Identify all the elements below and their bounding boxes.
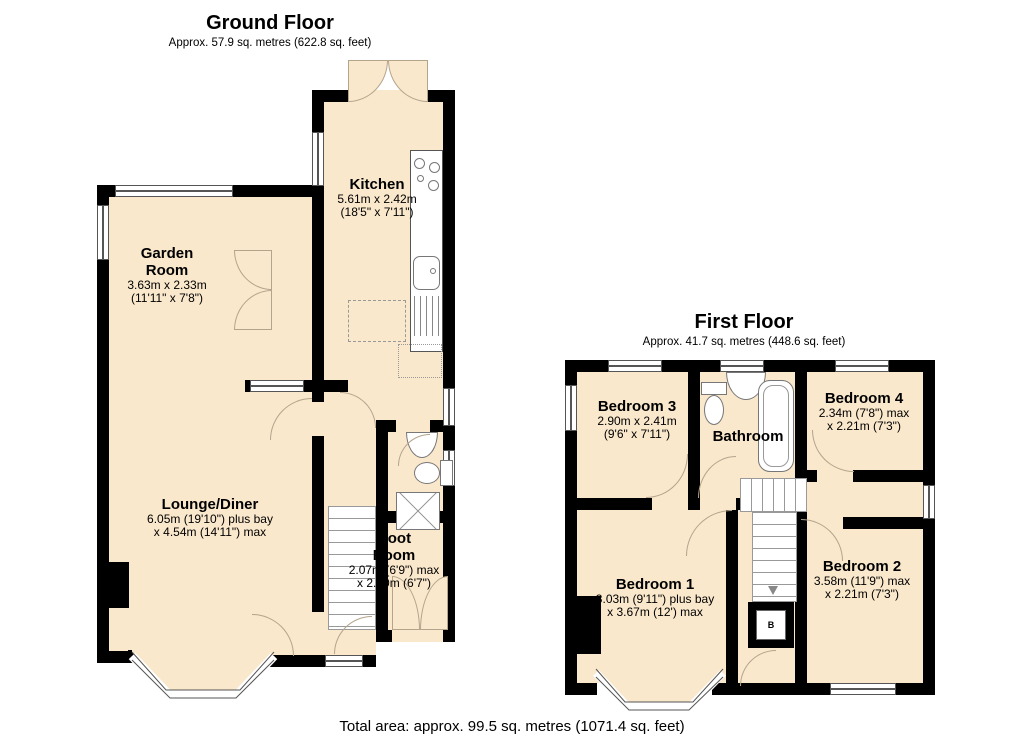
tap-icon xyxy=(430,268,436,274)
appliance-outline xyxy=(348,300,406,342)
hob-icon xyxy=(428,180,439,191)
bedroom1-label: Bedroom 1 3.03m (9'11") plus bay x 3.67m… xyxy=(596,576,714,619)
window xyxy=(923,485,935,519)
wall xyxy=(312,436,324,612)
hob-icon xyxy=(417,175,424,182)
room-dims: (11'11" x 7'8") xyxy=(121,292,213,305)
window xyxy=(608,360,662,372)
wall xyxy=(312,392,324,402)
bedroom3-label: Bedroom 3 2.90m x 2.41m (9'6" x 7'11") xyxy=(597,398,676,441)
window xyxy=(565,385,577,431)
window xyxy=(835,360,889,372)
room-name: Garden Room xyxy=(121,245,213,279)
wall xyxy=(443,90,455,642)
wall xyxy=(324,380,348,392)
garden-room-label: Garden Room 3.63m x 2.33m (11'11" x 7'8"… xyxy=(121,245,213,305)
hob-icon xyxy=(414,158,425,169)
boot-room-label: Boot Room 2.07m (6'9") max x 2.00m (6'7"… xyxy=(349,530,440,590)
window xyxy=(97,205,109,260)
room-dims: x 2.00m (6'7") xyxy=(349,577,440,590)
chimney-breast xyxy=(109,562,129,608)
room-dims: x 2.21m (7'3") xyxy=(814,588,910,601)
room-dims: x 4.54m (14'11") max xyxy=(147,526,273,539)
bathroom-label: Bathroom xyxy=(713,428,784,445)
wall xyxy=(853,470,923,482)
window xyxy=(720,360,764,372)
total-area-text: Total area: approx. 99.5 sq. metres (107… xyxy=(0,718,1024,735)
wall xyxy=(807,470,817,482)
room-name: Boot Room xyxy=(359,530,429,564)
bay-window xyxy=(128,648,278,704)
ground-floor-title: Ground Floor xyxy=(206,12,334,35)
ground-floor-subtitle: Approx. 57.9 sq. metres (622.8 sq. feet) xyxy=(169,37,372,49)
floorplan-canvas: B Ground Floor Approx. 57.9 sq. metres (… xyxy=(0,0,1024,744)
wall xyxy=(843,517,923,529)
room-name: Bedroom 3 xyxy=(597,398,676,415)
kitchen-sink-icon xyxy=(413,256,440,290)
room-name: Bedroom 1 xyxy=(596,576,714,593)
shower-icon xyxy=(396,492,440,530)
window xyxy=(325,655,363,667)
window xyxy=(312,132,324,186)
wall xyxy=(577,498,652,510)
wall xyxy=(923,372,935,695)
room-name: Lounge/Diner xyxy=(147,496,273,513)
room-dims: x 3.67m (12') max xyxy=(596,606,714,619)
toilet-icon xyxy=(704,395,724,425)
bathtub-inner xyxy=(763,385,789,467)
first-floor-title: First Floor xyxy=(695,311,794,334)
window xyxy=(443,388,455,426)
bedroom2-label: Bedroom 2 3.58m (11'9") max x 2.21m (7'3… xyxy=(814,558,910,601)
room-dims: x 2.21m (7'3") xyxy=(819,420,910,433)
window xyxy=(115,185,233,197)
first-floor-subtitle: Approx. 41.7 sq. metres (448.6 sq. feet) xyxy=(643,336,846,348)
hob-icon xyxy=(429,162,440,173)
stairs-direction-arrow xyxy=(768,586,778,595)
room-dims: (9'6" x 7'11") xyxy=(597,428,676,441)
lounge-diner-label: Lounge/Diner 6.05m (19'10") plus bay x 4… xyxy=(147,496,273,539)
room-name: Bedroom 4 xyxy=(819,390,910,407)
room-name: Kitchen xyxy=(337,176,416,193)
room-name: Bathroom xyxy=(713,428,784,445)
boiler-label: B xyxy=(756,610,786,640)
drainer-icon xyxy=(414,296,440,336)
wall xyxy=(97,392,109,663)
wall xyxy=(726,602,738,683)
kitchen-label: Kitchen 5.61m x 2.42m (18'5" x 7'11") xyxy=(337,176,416,219)
appliance-outline xyxy=(398,344,442,378)
bay-window xyxy=(592,666,727,716)
wall xyxy=(376,630,392,642)
window xyxy=(830,683,896,695)
staircase-landing xyxy=(740,478,807,512)
room-dims: (18'5" x 7'11") xyxy=(337,206,416,219)
room-name: Bedroom 2 xyxy=(814,558,910,575)
wall xyxy=(448,630,455,642)
window xyxy=(250,380,304,392)
cistern-icon xyxy=(701,382,727,395)
cistern-icon xyxy=(440,460,453,486)
bedroom4-label: Bedroom 4 2.34m (7'8") max x 2.21m (7'3"… xyxy=(819,390,910,433)
